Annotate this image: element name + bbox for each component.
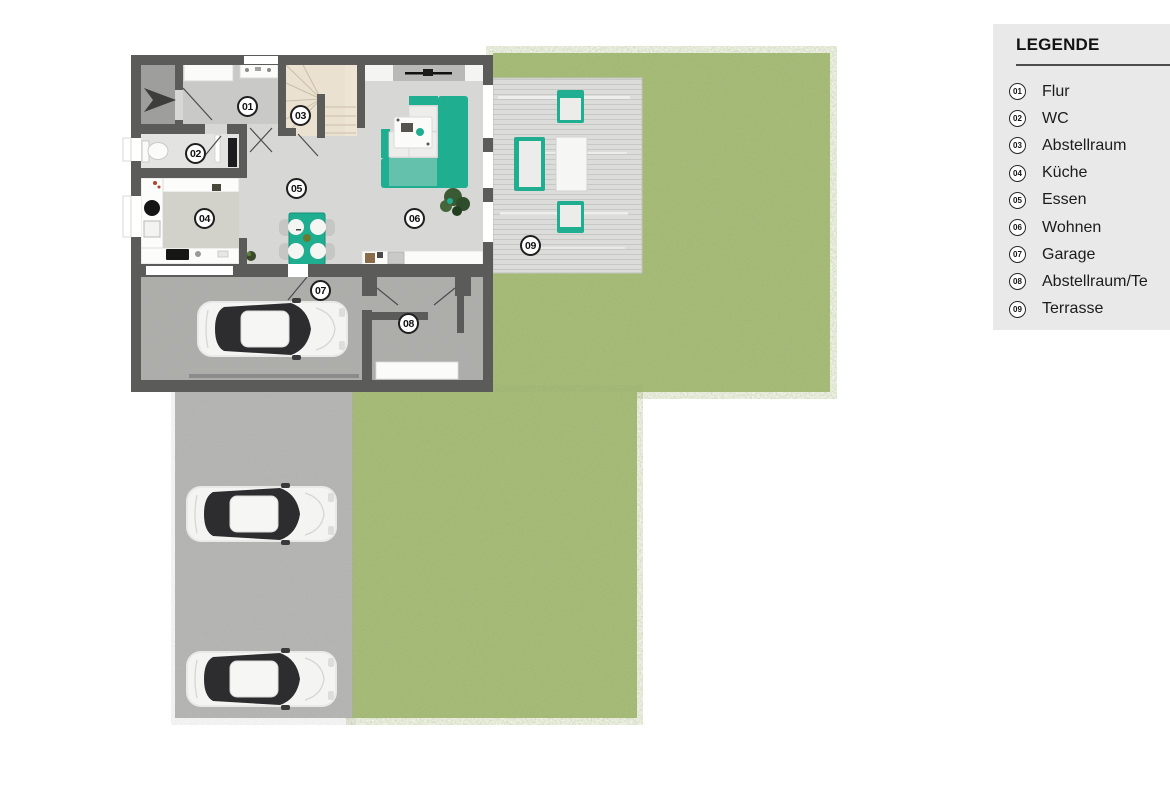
wardrobe <box>184 64 233 81</box>
legend-item-number: 04 <box>1009 165 1026 182</box>
kitchen-item <box>158 186 161 189</box>
kitchen-item <box>218 251 228 257</box>
legend-item-number: 08 <box>1009 273 1026 290</box>
kitchen-sink <box>144 200 160 216</box>
room-badge-essen: 05 <box>286 178 307 199</box>
terrace-door <box>483 152 493 188</box>
kitchen-item <box>212 184 221 191</box>
legend-items: 01 Flur 02 WC 03 Abstellraum 04 Küche 05… <box>1009 78 1170 323</box>
shower <box>228 138 237 167</box>
legend-item-number: 06 <box>1009 219 1026 236</box>
legend-item-label: Abstellraum <box>1042 137 1126 155</box>
legend-item-label: WC <box>1042 110 1069 128</box>
legend-panel: LEGENDE 01 Flur 02 WC 03 Abstellraum 04 … <box>993 24 1170 330</box>
legend-divider <box>1016 64 1170 66</box>
floor-plan-canvas: 01 02 03 04 05 06 07 08 09 LEGENDE 01 Fl… <box>0 0 1170 785</box>
tv-sideboard <box>365 63 483 81</box>
legend-item-terrasse: 09 Terrasse <box>1009 296 1170 323</box>
stove <box>144 221 160 237</box>
cooktop <box>166 249 189 260</box>
legend-item-number: 09 <box>1009 301 1026 318</box>
coffee-table <box>394 117 432 148</box>
terrace-door <box>483 85 493 138</box>
garage-door <box>189 374 359 378</box>
car-driveway-1 <box>186 483 337 545</box>
room-badge-wc: 02 <box>185 143 206 164</box>
legend-item-label: Flur <box>1042 83 1070 101</box>
window-sill <box>123 196 131 237</box>
legend-item-essen: 05 Essen <box>1009 187 1170 214</box>
legend-item-label: Garage <box>1042 246 1095 264</box>
room-badge-abstellraum-technik: 08 <box>398 313 419 334</box>
plant-leaf <box>247 252 251 256</box>
plant <box>246 251 256 261</box>
legend-item-kueche: 04 Küche <box>1009 160 1170 187</box>
legend-item-garage: 07 Garage <box>1009 241 1170 268</box>
kitchen-item <box>195 251 201 257</box>
legend-item-wohnen: 06 Wohnen <box>1009 214 1170 241</box>
hall-sideboard <box>240 64 278 78</box>
room-badge-wohnen: 06 <box>404 208 425 229</box>
window-sill <box>123 138 131 161</box>
kitchen-item <box>153 181 157 185</box>
legend-item-abstellraum: 03 Abstellraum <box>1009 132 1170 159</box>
legend-item-abstellraum-technik: 08 Abstellraum/Te <box>1009 268 1170 295</box>
legend-item-label: Essen <box>1042 191 1086 209</box>
legend-item-number: 03 <box>1009 137 1026 154</box>
living-sideboard <box>362 251 483 266</box>
legend-item-label: Abstellraum/Te <box>1042 273 1148 291</box>
legend-item-number: 01 <box>1009 83 1026 100</box>
legend-item-wc: 02 WC <box>1009 105 1170 132</box>
legend-item-number: 07 <box>1009 246 1026 263</box>
legend-item-label: Küche <box>1042 164 1087 182</box>
legend-item-label: Wohnen <box>1042 219 1101 237</box>
room-badge-abstellraum: 03 <box>290 105 311 126</box>
car-driveway-2 <box>186 648 337 710</box>
legend-item-flur: 01 Flur <box>1009 78 1170 105</box>
car-garage <box>197 298 348 360</box>
room-badge-kueche: 04 <box>194 208 215 229</box>
room-badge-terrasse: 09 <box>520 235 541 256</box>
room-badge-garage: 07 <box>310 280 331 301</box>
workbench <box>376 362 458 379</box>
room-badge-flur: 01 <box>237 96 258 117</box>
legend-item-label: Terrasse <box>1042 300 1103 318</box>
legend-title: LEGENDE <box>1016 35 1170 55</box>
legend-item-number: 05 <box>1009 192 1026 209</box>
garage-access-door <box>288 264 308 277</box>
legend-item-number: 02 <box>1009 110 1026 127</box>
